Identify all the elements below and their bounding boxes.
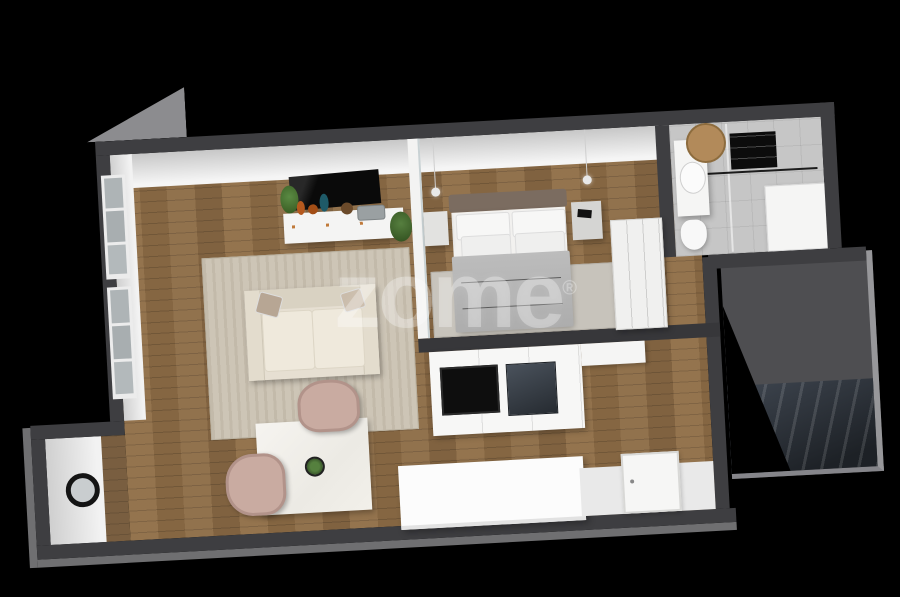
- exterior-roof-face: [84, 87, 187, 142]
- watermark: zome®: [334, 248, 577, 342]
- cooktop: [440, 365, 501, 416]
- dining-chair-left: [224, 452, 287, 517]
- nightstand-right: [571, 201, 603, 241]
- render-canvas: { "watermark": { "text": "zome", "mark":…: [0, 0, 900, 597]
- window-pane: [106, 211, 126, 242]
- window-pane: [108, 244, 128, 274]
- wardrobe: [610, 217, 668, 330]
- nightstand-left: [423, 211, 449, 246]
- towel-radiator: [729, 131, 777, 169]
- watermark-text: zome: [334, 242, 562, 347]
- window-pane: [114, 361, 134, 394]
- watermark-registered-icon: ®: [562, 278, 577, 300]
- kitchen-island: [398, 456, 586, 530]
- kitchen-counter-extension: [581, 341, 646, 366]
- window-pane: [110, 289, 130, 323]
- window-pane: [104, 178, 124, 209]
- book: [577, 209, 592, 218]
- dining-chair-top: [296, 378, 361, 433]
- sofa-seat-cushion-left: [261, 309, 315, 372]
- oven: [506, 361, 559, 416]
- window-pane: [112, 325, 132, 359]
- bathtub: [764, 183, 829, 252]
- decor-tray: [357, 204, 386, 220]
